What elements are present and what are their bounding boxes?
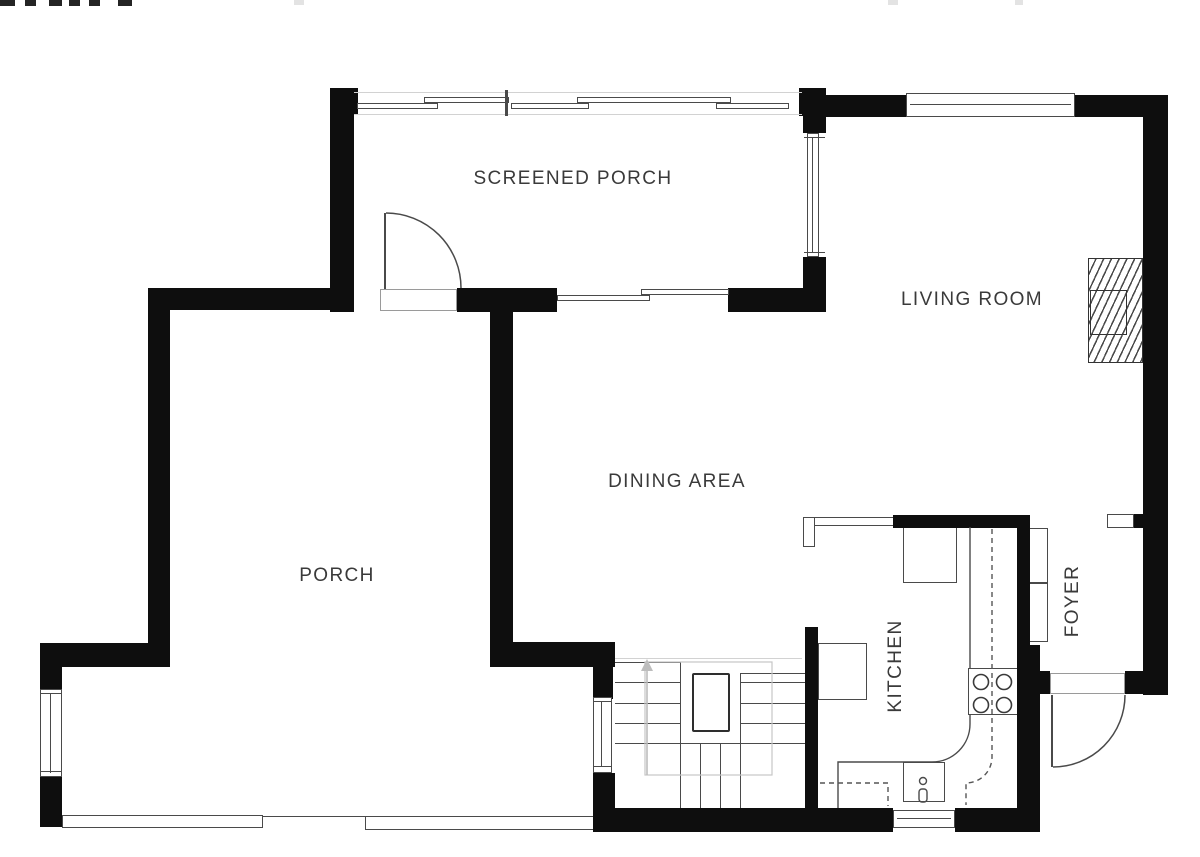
wall-living-north-a	[825, 95, 906, 117]
stove	[968, 668, 1018, 715]
wall-stair-east	[805, 627, 818, 832]
window-pane-line	[910, 104, 1071, 105]
wall-south-stairs	[597, 808, 893, 832]
window-stair-west	[593, 697, 612, 773]
foyer-closet-lower	[1028, 583, 1048, 642]
room-label-dining-area: DINING AREA	[608, 471, 746, 493]
stair-tread-lower	[720, 743, 721, 808]
stair-tread-right	[740, 703, 805, 704]
upper-cabinet-dashed-line	[966, 529, 992, 805]
window-cap	[804, 137, 825, 138]
top-edge-artifact	[1015, 0, 1023, 5]
kitchen-table	[818, 643, 867, 700]
wall-foyer-south-a	[1017, 671, 1050, 694]
stair-tread	[615, 743, 680, 744]
door-swing-front	[1053, 695, 1125, 767]
floor-plan-canvas: SCREENED PORCH LIVING ROOM DINING AREA P…	[0, 0, 1200, 857]
screen-panel	[577, 97, 731, 103]
window-cap	[804, 252, 825, 253]
foyer-closet-upper	[1028, 528, 1048, 583]
stair-landing-edge	[680, 743, 805, 744]
wall-porch-west	[148, 288, 170, 667]
stair-stringer	[740, 673, 741, 808]
screen-band-edge	[354, 92, 802, 93]
window-cap	[593, 701, 612, 702]
window-pane-line	[50, 693, 51, 773]
room-label-foyer: FOYER	[1062, 565, 1084, 637]
top-edge-artifact	[0, 0, 15, 6]
wall-stair-west-upper	[593, 643, 613, 699]
window-pane-line	[897, 818, 951, 819]
wall-kitchen-north	[893, 515, 1027, 528]
stairs-top-edge	[615, 658, 802, 659]
fireplace-firebox	[1090, 290, 1127, 335]
screen-panel	[716, 103, 789, 109]
top-edge-artifact	[69, 0, 80, 6]
porch-step-right	[365, 816, 595, 830]
door-leaf-screened-porch	[384, 213, 386, 289]
wall-screened-porch-south-b	[728, 288, 826, 312]
kitchen-counter-top-end	[803, 517, 815, 547]
room-label-living-room: LIVING ROOM	[901, 289, 1043, 311]
refrigerator	[903, 527, 957, 583]
stair-up-arrow-icon	[641, 659, 653, 671]
porch-step-left	[62, 815, 263, 828]
wall-porch-west-lower-a	[40, 643, 62, 689]
stair-landing	[692, 673, 730, 732]
top-edge-artifact	[49, 0, 62, 6]
stair-stringer	[680, 662, 681, 808]
top-edge-artifact	[89, 0, 100, 6]
top-edge-artifact	[888, 0, 898, 5]
wall-screened-porch-west	[330, 90, 354, 312]
door-swing-screened-porch	[386, 213, 461, 288]
screen-panel	[511, 103, 589, 109]
top-edge-artifact	[294, 0, 304, 5]
room-label-porch: PORCH	[299, 565, 375, 587]
sink	[903, 762, 945, 802]
stair-tread-right	[740, 673, 805, 674]
window-cap	[593, 766, 612, 767]
stair-tread	[615, 682, 680, 683]
wall-porch-north	[148, 288, 330, 310]
stair-tread	[615, 723, 680, 724]
room-label-kitchen: KITCHEN	[885, 619, 907, 712]
stair-tread	[615, 662, 680, 663]
wall-foyer-window-stub	[1133, 514, 1143, 528]
wall-foyer-south-b	[1125, 671, 1168, 694]
door-opening-front	[1050, 673, 1125, 694]
door-leaf-front	[1051, 695, 1053, 767]
wall-kitchen-east-upper	[1017, 515, 1030, 647]
wall-dining-west	[490, 305, 513, 663]
wall-porch-west-lower-b	[40, 775, 62, 827]
stair-tread	[615, 703, 680, 704]
stair-tread-lower	[700, 743, 701, 808]
top-edge-artifact	[118, 0, 132, 6]
window-pane-line	[601, 701, 602, 767]
screen-panel	[424, 97, 509, 103]
upper-cabinet-dashed-line	[820, 783, 888, 806]
window-cap	[40, 693, 62, 694]
screen-band-edge	[354, 114, 802, 115]
kitchen-counter-top	[803, 517, 897, 526]
wall-screened-porch-east-upper	[803, 88, 826, 133]
window-cap	[40, 771, 62, 772]
screen-panel	[357, 103, 438, 109]
room-label-screened-porch: SCREENED PORCH	[473, 168, 672, 190]
screen-mullion	[505, 90, 508, 116]
wall-east-exterior	[1143, 95, 1168, 695]
stair-tread-right	[740, 682, 805, 683]
window-screened-porch-south	[641, 289, 729, 295]
door-opening-screened-porch	[380, 289, 457, 311]
window-foyer-divider	[1107, 514, 1134, 528]
window-pane-line	[812, 137, 813, 253]
window-screened-porch-south	[557, 295, 650, 301]
wall-south-kitchen	[955, 808, 1023, 832]
stair-tread-right	[740, 723, 805, 724]
top-edge-artifact	[25, 0, 36, 6]
